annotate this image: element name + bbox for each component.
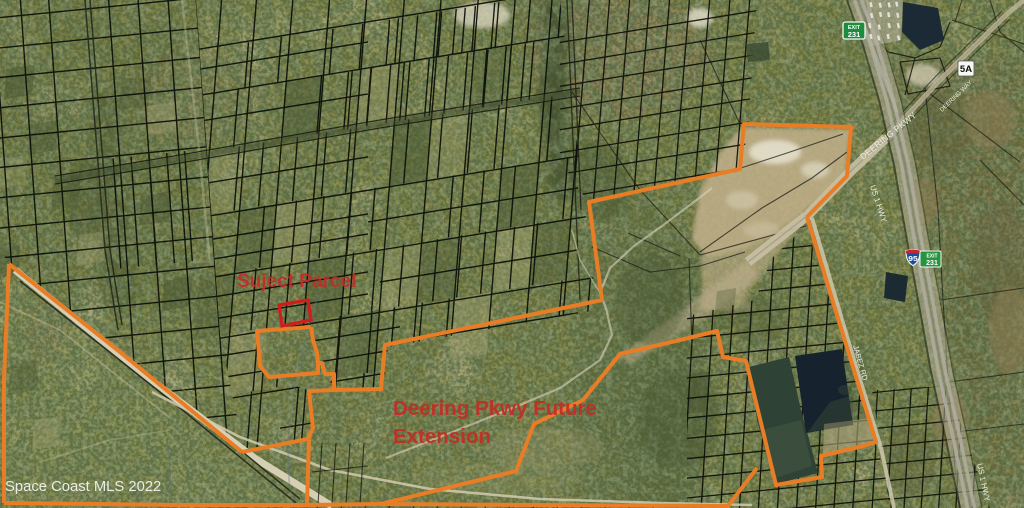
svg-text:Extension: Extension <box>393 425 491 448</box>
svg-text:EXIT: EXIT <box>926 254 937 260</box>
svg-text:95: 95 <box>908 255 918 263</box>
svg-text:Suject Parcel: Suject Parcel <box>237 271 356 292</box>
svg-text:Deering Pkwy Future: Deering Pkwy Future <box>393 397 597 420</box>
svg-text:Space Coast MLS 2022: Space Coast MLS 2022 <box>5 479 161 495</box>
svg-text:5A: 5A <box>960 64 972 75</box>
svg-text:231: 231 <box>848 30 861 39</box>
svg-text:231: 231 <box>926 260 938 267</box>
